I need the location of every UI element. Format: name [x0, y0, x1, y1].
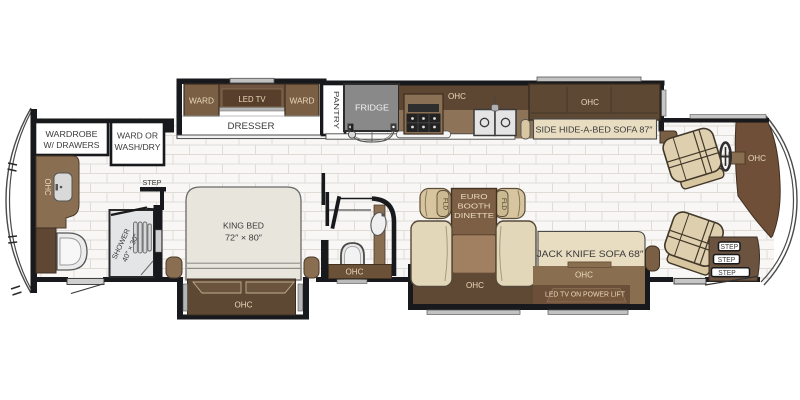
- svg-text:OHC: OHC: [466, 280, 484, 290]
- svg-text:LED TV ON POWER LIFT: LED TV ON POWER LIFT: [545, 292, 626, 299]
- svg-text:STEP: STEP: [721, 244, 739, 251]
- svg-text:STEP: STEP: [718, 257, 736, 264]
- svg-text:DINETTE: DINETTE: [454, 211, 494, 220]
- svg-text:OHC: OHC: [575, 270, 593, 280]
- svg-text:OHC: OHC: [235, 300, 253, 310]
- svg-text:BOOTH: BOOTH: [458, 202, 491, 211]
- svg-text:WARD: WARD: [290, 97, 315, 106]
- svg-text:LED TV: LED TV: [239, 94, 266, 104]
- svg-text:OHC: OHC: [748, 153, 766, 163]
- svg-text:OHC: OHC: [448, 91, 466, 101]
- svg-text:FLD: FLD: [500, 198, 507, 210]
- svg-text:72″ × 80″: 72″ × 80″: [225, 234, 262, 243]
- svg-text:W/ DRAWERS: W/ DRAWERS: [44, 141, 101, 150]
- svg-text:WARDROBE: WARDROBE: [46, 130, 99, 139]
- svg-text:OHC: OHC: [581, 97, 599, 107]
- svg-text:WARD: WARD: [189, 97, 214, 106]
- svg-text:EURO: EURO: [461, 192, 488, 201]
- svg-text:PANTRY: PANTRY: [332, 91, 341, 129]
- svg-text:STEP: STEP: [718, 270, 736, 277]
- svg-text:STEP: STEP: [143, 178, 162, 187]
- svg-text:FRIDGE: FRIDGE: [355, 103, 389, 113]
- svg-text:DRESSER: DRESSER: [228, 120, 275, 131]
- svg-text:OHC: OHC: [346, 268, 364, 277]
- svg-text:SIDE HIDE-A-BED SOFA 87″: SIDE HIDE-A-BED SOFA 87″: [536, 125, 653, 135]
- svg-text:FLD: FLD: [442, 198, 449, 210]
- svg-text:WASH/DRY: WASH/DRY: [115, 143, 162, 152]
- svg-text:OHC: OHC: [43, 179, 52, 196]
- svg-text:JACK KNIFE SOFA 68″: JACK KNIFE SOFA 68″: [537, 249, 644, 259]
- svg-text:KING BED: KING BED: [223, 221, 264, 231]
- svg-text:WARD OR: WARD OR: [117, 132, 158, 141]
